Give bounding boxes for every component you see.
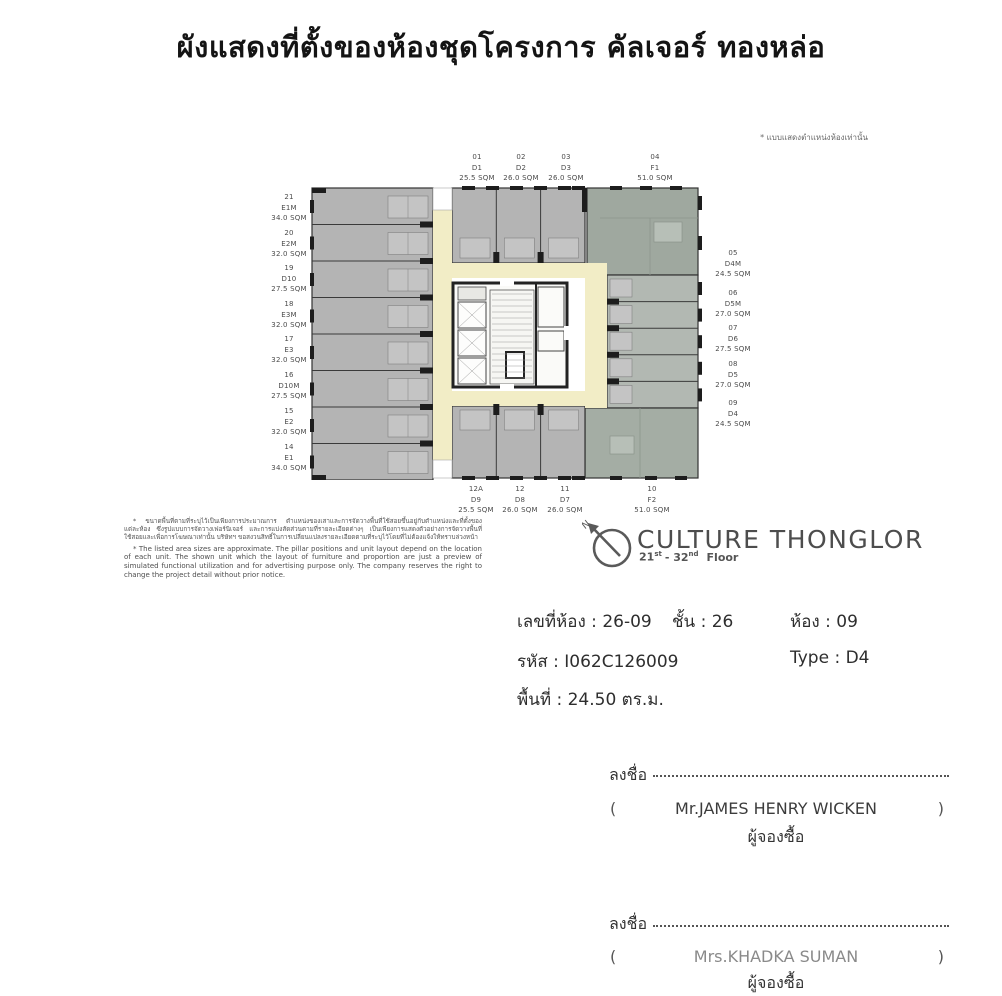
floor-plan-svg (310, 186, 702, 480)
floor-plan (310, 186, 702, 480)
signatory-role-1: ผู้จองซื้อ (600, 825, 952, 850)
type-field: Type : D4 (790, 648, 870, 668)
logo-floor-range: 21st- 32ndFloor (639, 550, 738, 564)
room-number-field: เลขที่ห้อง : 26-09 (517, 608, 652, 635)
signatory-name-row-2: ( Mrs.KHADKA SUMAN ) (600, 947, 952, 966)
floor-to-sup: nd (689, 550, 699, 558)
unit-label-06: 06D5M27.0 SQM (696, 288, 770, 320)
paren-close-2: ) (938, 947, 944, 966)
code-field: รหัส : I062C126009 (517, 648, 679, 675)
signature-line-2 (653, 925, 949, 927)
unit-label-10: 10F251.0 SQM (615, 484, 689, 516)
sign-label-1: ลงชื่อ (609, 763, 647, 788)
floor-from-sup: st (654, 550, 662, 558)
floor-field: ชั้น : 26 (672, 608, 733, 635)
disclaimer-thai: * ขนาดพื้นที่ตามที่ระบุไว้เป็นเพียงการปร… (124, 518, 482, 543)
unit-label-05: 05D4M24.5 SQM (696, 248, 770, 280)
unit-label-08: 08D527.0 SQM (696, 359, 770, 391)
paren-open-1: ( (610, 799, 616, 818)
signatory-name-2: Mrs.KHADKA SUMAN (694, 947, 858, 966)
paren-open-2: ( (610, 947, 616, 966)
corner-note: * แบบแสดงตำแหน่งห้องเท่านั้น (760, 131, 868, 144)
area-field: พื้นที่ : 24.50 ตร.ม. (517, 686, 664, 713)
signatory-name-1: Mr.JAMES HENRY WICKEN (675, 799, 877, 818)
signatory-name-row-1: ( Mr.JAMES HENRY WICKEN ) (600, 799, 952, 818)
unit-label-15: 15E232.0 SQM (252, 406, 326, 438)
floor-from: 21 (639, 551, 654, 564)
unit-field: ห้อง : 09 (790, 608, 858, 635)
page-title: ผังแสดงที่ตั้งของห้องชุดโครงการ คัลเจอร์… (0, 24, 1002, 70)
paren-close-1: ) (938, 799, 944, 818)
signature-line-1 (653, 775, 949, 777)
sign-label-2: ลงชื่อ (609, 912, 647, 937)
unit-label-17: 17E332.0 SQM (252, 334, 326, 366)
disclaimer: * ขนาดพื้นที่ตามที่ระบุไว้เป็นเพียงการปร… (124, 518, 482, 580)
unit-label-04: 04F151.0 SQM (618, 152, 692, 184)
compass-north-icon: N (582, 517, 638, 573)
signatory-role-2: ผู้จองซื้อ (600, 971, 952, 996)
unit-label-18: 18E3M32.0 SQM (252, 299, 326, 331)
unit-label-21: 21E1M34.0 SQM (252, 192, 326, 224)
unit-label-09: 09D424.5 SQM (696, 398, 770, 430)
unit-label-16: 16D10M27.5 SQM (252, 370, 326, 402)
floor-word: Floor (707, 551, 739, 564)
unit-label-20: 20E2M32.0 SQM (252, 228, 326, 260)
unit-label-11: 11D726.0 SQM (528, 484, 602, 516)
unit-label-07: 07D627.5 SQM (696, 323, 770, 355)
floor-mid: - 32 (665, 551, 689, 564)
disclaimer-english: * The listed area sizes are approximate.… (124, 545, 482, 581)
unit-label-03: 03D326.0 SQM (529, 152, 603, 184)
unit-label-19: 19D1027.5 SQM (252, 263, 326, 295)
unit-label-14: 14E134.0 SQM (252, 442, 326, 474)
